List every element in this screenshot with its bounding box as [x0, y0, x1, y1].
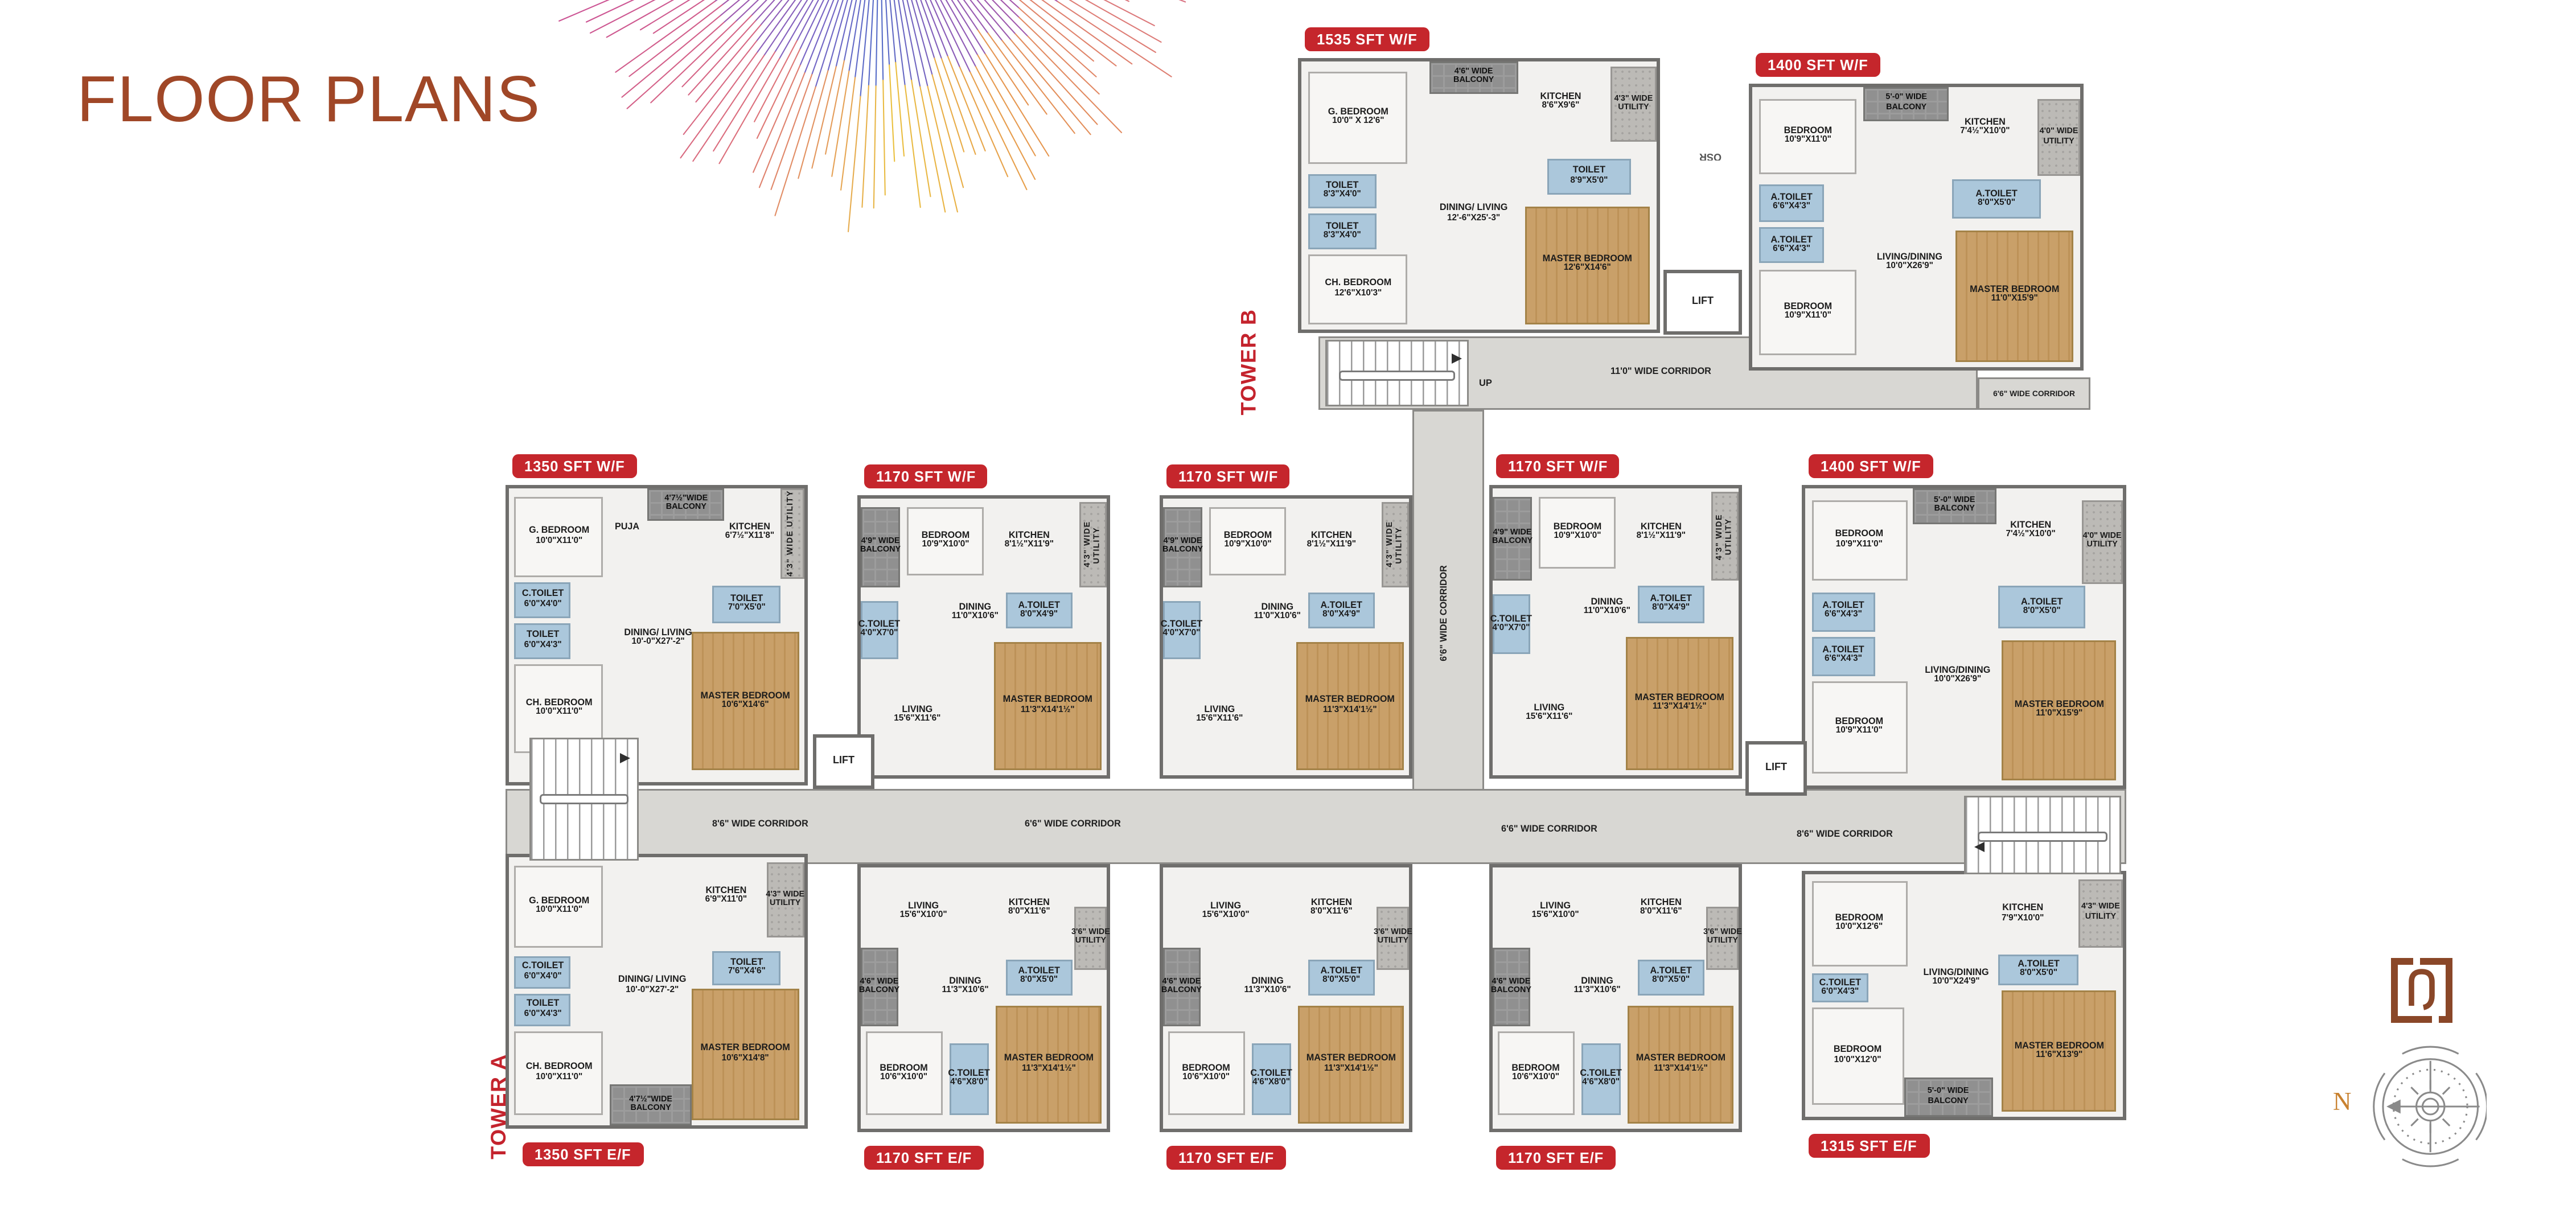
room-dimensions: 8'0"X4'9"	[1652, 605, 1690, 615]
lift-tower-b: LIFT	[1663, 270, 1742, 335]
unit-area-badge: 1400 SFT W/F	[1756, 53, 1880, 77]
room-dimensions: 8'0"X11'6"	[1008, 908, 1050, 919]
room-dimensions: 7'9"X10'0"	[2002, 915, 2044, 925]
room-living-dining: LIVING/DINING10'0"X24'9"	[1910, 945, 2002, 1013]
room-bedroom: BEDROOM10'9"X10'0"	[907, 507, 984, 577]
room-dining: DINING11'3"X10'6"	[1230, 959, 1306, 1014]
room-living: LIVING15'6"X10'0"	[873, 875, 974, 948]
room-dimensions: 4'6"X8'0"	[950, 1079, 988, 1089]
room-dimensions: 10'0" X 12'6"	[1332, 118, 1384, 128]
room-name: 4'3" WIDE UTILITY	[1084, 503, 1103, 586]
room-dimensions: 11'0"X15'9"	[1991, 296, 2038, 306]
room-4-6-wide: 4'6" WIDEBALCONY	[1429, 61, 1518, 93]
room-bedroom: BEDROOM10'9"X10'0"	[1210, 507, 1286, 577]
room-dimensions: UTILITY	[2086, 542, 2117, 552]
room-4-3-wide-utility: 4'3" WIDE UTILITY	[1382, 501, 1408, 587]
unit-1170-sft-ef-2: LIVING15'6"X10'0"KITCHEN8'0"X11'6"3'6" W…	[1160, 864, 1412, 1132]
room-dimensions: 4'0"X7'0"	[1162, 630, 1200, 640]
room-kitchen: KITCHEN8'0"X11'6"	[1625, 875, 1696, 941]
unit-1170-sft-wf-3: 4'9" WIDEBALCONYBEDROOM10'9"X10'0"KITCHE…	[1489, 485, 1742, 779]
tower-b-label: TOWER B	[1236, 309, 1260, 416]
room-dimensions: BALCONY	[666, 504, 706, 514]
room-a-toilet: A.TOILET8'0"X5'0"	[1999, 955, 2078, 986]
room-c-toilet: C.TOILET6'0"X4'0"	[515, 582, 571, 618]
room-living-dining: LIVING/DINING10'0"X26'9"	[1916, 634, 1999, 717]
room-4-7-wide: 4'7½"WIDEBALCONY	[648, 488, 725, 521]
unit-1350-sft-ef: G. BEDROOM10'0"X11'0"KITCHEN6'9"X11'0"4'…	[506, 854, 808, 1129]
room-kitchen: KITCHEN7'4½"X10'0"	[1990, 503, 2072, 560]
room-dimensions: 10'0"X24'9"	[1933, 979, 1980, 989]
room-dimensions: 7'4½"X10'0"	[1960, 128, 2010, 138]
room-name: 5'-0" WIDE	[1928, 1088, 1969, 1097]
room-dimensions: 10'9"X10'0"	[1554, 533, 1601, 544]
unit-area-badge: 1170 SFT E/F	[1496, 1146, 1616, 1170]
room-dimensions: 11'0"X10'6"	[952, 614, 999, 624]
room-living: LIVING15'6"X10'0"	[1176, 875, 1276, 948]
compass-north-label: N	[2333, 1089, 2352, 1118]
corridor-tower-a: 8'6" WIDE CORRIDOR 6'6" WIDE CORRIDOR 6'…	[506, 789, 2126, 864]
room-dimensions: UTILITY	[1378, 938, 1408, 948]
room-name: 5'-0" WIDE	[1934, 497, 1975, 507]
unit-area-badge: 1170 SFT W/F	[1166, 464, 1290, 488]
corridor-width-label: 6'6" WIDE CORRIDOR	[1025, 820, 1121, 830]
floor-plans-canvas: FLOOR PLANS TOWER B G. BEDROOM10'0" X 12…	[0, 0, 2576, 1205]
room-4-3-wide: 4'3" WIDEUTILITY	[2078, 879, 2123, 947]
room-dimensions: 8'0"X4'9"	[1322, 611, 1360, 621]
room-dimensions: 8'0"X5'0"	[1322, 977, 1360, 988]
room-a-toilet: A.TOILET6'6"X4'3"	[1811, 593, 1875, 631]
room-4-6-wide: 4'6" WIDEBALCONY	[1163, 948, 1200, 1027]
room-dimensions: 10'9"X10'0"	[922, 542, 969, 552]
unit-area-badge: 1315 SFT E/F	[1809, 1134, 1929, 1158]
room-dimensions: BALCONY	[1886, 104, 1926, 113]
room-dimensions: 12'6"X10'3"	[1334, 290, 1382, 300]
room-dimensions: 6'6"X4'3"	[1825, 612, 1862, 622]
room-master-bedroom: MASTER BEDROOM11'3"X14'1½"	[1628, 1006, 1734, 1124]
room-c-toilet: C.TOILET6'0"X4'0"	[515, 956, 571, 988]
room-bedroom: BEDROOM10'9"X11'0"	[1759, 269, 1857, 356]
room-master-bedroom: MASTER BEDROOM10'6"X14'6"	[692, 632, 799, 770]
room-kitchen: KITCHEN8'1½"X11'9"	[1296, 509, 1367, 573]
room-name: 4'7½"WIDE	[664, 495, 708, 505]
room-a-toilet: A.TOILET6'6"X4'3"	[1759, 227, 1824, 264]
room-dimensions: 11'6"X13'9"	[2036, 1051, 2082, 1062]
room-dimensions: 8'0"X5'0"	[2023, 607, 2061, 618]
room-dimensions: 8'3"X4'0"	[1324, 232, 1361, 242]
room-dimensions: 4'6"X8'0"	[1582, 1079, 1620, 1089]
room-4-3-wide-utility: 4'3" WIDE UTILITY	[780, 488, 804, 579]
lift-tower-a-east: LIFT	[1745, 741, 1807, 796]
room-name: 4'7½"WIDE	[629, 1096, 672, 1105]
corridor-width-label: 8'6" WIDE CORRIDOR	[1797, 830, 1893, 840]
room-dimensions: 11'0"X10'6"	[1254, 614, 1301, 624]
room-dimensions: 8'0"X5'0"	[1978, 199, 2015, 209]
room-dimensions: 6'7½"X11'8"	[725, 533, 774, 543]
room-dimensions: BALCONY	[1453, 77, 1494, 87]
room-dimensions: 6'6"X4'3"	[1773, 204, 1810, 214]
room-dimensions: BALCONY	[631, 1105, 671, 1115]
corridor-width-label: 6'6" WIDE CORRIDOR	[1979, 379, 2089, 408]
room-name: DINING/ LIVING	[618, 976, 687, 986]
room-name: PUJA	[615, 523, 639, 533]
room-dimensions: 8'0"X5'0"	[1020, 977, 1058, 988]
lift-tower-a-west: LIFT	[813, 734, 874, 789]
room-dimensions: 10'0"X12'6"	[1835, 924, 1883, 935]
room-name: 4'0" WIDE	[2040, 128, 2078, 138]
room-dimensions: 6'0"X4'0"	[524, 601, 562, 611]
stairs-up-label: UP	[1479, 379, 1492, 389]
room-4-6-wide: 4'6" WIDEBALCONY	[861, 948, 898, 1027]
unit-area-badge: 1170 SFT E/F	[864, 1146, 984, 1170]
room-4-0-wide: 4'0" WIDEUTILITY	[2037, 98, 2080, 177]
room-4-9-wide: 4'9" WIDEBALCONY	[1163, 507, 1202, 587]
room-bedroom: BEDROOM10'6"X10'0"	[1168, 1032, 1244, 1116]
lift-label: LIFT	[1765, 763, 1787, 774]
page-title: FLOOR PLANS	[77, 65, 541, 138]
room-living: LIVING15'6"X11'6"	[1505, 669, 1593, 758]
room-dimensions: 10'-0"X27'-2"	[631, 639, 684, 649]
room-dimensions: BALCONY	[1492, 538, 1533, 548]
room-dimensions: 10'9"X10'0"	[1225, 542, 1272, 552]
room-toilet: TOILET8'9"X5'0"	[1547, 158, 1632, 196]
unit-area-badge: 1350 SFT E/F	[523, 1142, 643, 1166]
room-name: CH. BEDROOM	[526, 1063, 593, 1074]
room-master-bedroom: MASTER BEDROOM11'0"X15'9"	[1955, 230, 2073, 361]
room-name: KITCHEN	[2002, 904, 2043, 915]
room-living-dining: LIVING/DINING10'0"X26'9"	[1867, 224, 1953, 303]
room-3-6-wide: 3'6" WIDEUTILITY	[1075, 907, 1107, 969]
room-dining: DINING11'3"X10'6"	[1559, 959, 1636, 1014]
room-a-toilet: A.TOILET8'0"X4'9"	[1006, 593, 1073, 628]
corridor-link: 6'6" WIDE CORRIDOR	[1412, 410, 1484, 792]
room-dimensions: UTILITY	[2043, 138, 2074, 147]
room-dimensions: 15'6"X11'6"	[894, 716, 940, 726]
room-dimensions: 7'4½"X10'0"	[2006, 532, 2056, 542]
room-c-toilet: C.TOILET4'0"X7'0"	[861, 601, 898, 659]
unit-area-badge: 1400 SFT W/F	[1809, 454, 1933, 478]
room-dimensions: 15'6"X11'6"	[1196, 716, 1243, 726]
room-bedroom: BEDROOM10'6"X10'0"	[1498, 1032, 1574, 1116]
room-dimensions: 10'9"X11'0"	[1785, 137, 1831, 147]
room-dimensions: 6'6"X4'3"	[1773, 245, 1810, 256]
room-master-bedroom: MASTER BEDROOM11'3"X14'1½"	[1625, 638, 1733, 770]
room-name: 4'3" WIDE	[766, 891, 804, 900]
room-dimensions: 10'6"X10'0"	[1512, 1074, 1559, 1084]
room-4-3-wide-utility: 4'3" WIDE UTILITY	[1079, 501, 1106, 587]
unit-1315-sft-ef: BEDROOM10'0"X12'6"KITCHEN7'9"X10'0"4'3" …	[1802, 871, 2126, 1120]
builder-logo-icon	[2388, 956, 2456, 1025]
room-a-toilet: A.TOILET8'0"X5'0"	[1952, 179, 2040, 219]
unit-1170-sft-wf-2: 4'9" WIDEBALCONYBEDROOM10'9"X10'0"KITCHE…	[1160, 495, 1412, 779]
room-a-toilet: A.TOILET8'0"X4'9"	[1308, 593, 1375, 628]
room-dimensions: 11'3"X14'1½"	[1324, 1065, 1378, 1075]
unit-1170-sft-wf-1: 4'9" WIDEBALCONYBEDROOM10'9"X10'0"KITCHE…	[857, 495, 1110, 779]
room-name: 3'6" WIDE	[1071, 928, 1110, 938]
room-name: C.TOILET	[522, 590, 564, 601]
room-dimensions: 10'6"X14'6"	[722, 702, 769, 712]
room-dimensions: 11'0"X10'6"	[1584, 608, 1630, 618]
room-bedroom: BEDROOM10'9"X10'0"	[1539, 497, 1616, 569]
room-dimensions: 4'6"X8'0"	[1252, 1079, 1290, 1089]
room-master-bedroom: MASTER BEDROOM11'0"X15'9"	[2002, 640, 2117, 779]
room-name: TOILET	[527, 631, 559, 641]
room-c-toilet: C.TOILET4'0"X7'0"	[1493, 594, 1530, 655]
floor-plans-page: FLOOR PLANS TOWER B G. BEDROOM10'0" X 12…	[0, 0, 2576, 1205]
staircase-tower-a-west	[529, 738, 639, 861]
room-dimensions: 8'0"X11'6"	[1310, 908, 1353, 919]
room-toilet: TOILET8'3"X4'0"	[1308, 214, 1376, 249]
unit-1400-sft-wf-tower-a: BEDROOM10'9"X11'0"5'-0" WIDEBALCONYKITCH…	[1802, 485, 2126, 789]
room-kitchen: KITCHEN7'4½"X10'0"	[1942, 101, 2028, 154]
room-dimensions: BALCONY	[1162, 547, 1203, 557]
room-g-bedroom: G. BEDROOM10'0"X11'0"	[515, 497, 603, 576]
stairs-direction-arrow	[1451, 354, 1461, 364]
room-dimensions: 8'0"X5'0"	[1652, 977, 1690, 988]
room-dimensions: 10'0"X26'9"	[1934, 676, 1981, 686]
room-kitchen: KITCHEN8'1½"X11'9"	[1625, 500, 1696, 566]
room-dimensions: 10'6"X10'0"	[880, 1074, 927, 1084]
stairs-direction-arrow	[1974, 841, 1984, 852]
room-dimensions: UTILITY	[1618, 104, 1649, 114]
unit-1170-sft-ef-1: LIVING15'6"X10'0"KITCHEN8'0"X11'6"3'6" W…	[857, 864, 1110, 1132]
room-bedroom: BEDROOM10'0"X12'6"	[1811, 882, 1907, 967]
room-a-toilet: A.TOILET8'0"X4'9"	[1638, 586, 1704, 623]
room-4-9-wide: 4'9" WIDEBALCONY	[861, 507, 900, 587]
room-name: 4'3" WIDE UTILITY	[788, 491, 798, 577]
room-dimensions: 6'6"X4'3"	[1825, 656, 1862, 667]
room-dimensions: UTILITY	[770, 900, 800, 910]
room-dimensions: 8'0"X11'6"	[1640, 908, 1682, 919]
room-a-toilet: A.TOILET8'0"X5'0"	[1999, 586, 2085, 628]
room-4-9-wide: 4'9" WIDEBALCONY	[1493, 497, 1532, 580]
room-a-toilet: A.TOILET8'0"X5'0"	[1638, 959, 1704, 996]
stairs-direction-arrow	[621, 754, 631, 764]
room-3-6-wide: 3'6" WIDEUTILITY	[1707, 907, 1739, 969]
staircase-tower-b	[1325, 340, 1469, 406]
room-g-bedroom: G. BEDROOM10'0" X 12'6"	[1308, 72, 1408, 163]
room-name: 4'6" WIDE	[1162, 978, 1201, 988]
room-dining: DINING11'0"X10'6"	[937, 585, 1013, 643]
tower-a-label: TOWER A	[487, 1054, 511, 1159]
room-4-7-wide: 4'7½"WIDEBALCONY	[609, 1085, 692, 1125]
room-kitchen: KITCHEN6'7½"X11'8"	[718, 500, 780, 565]
room-3-6-wide: 3'6" WIDEUTILITY	[1377, 907, 1409, 969]
room-dimensions: BALCONY	[1161, 988, 1202, 997]
unit-1400-sft-wf-tower-b: BEDROOM10'9"X11'0"5'-0" WIDEBALCONYKITCH…	[1749, 84, 2084, 371]
lift-label: LIFT	[833, 756, 854, 767]
room-dimensions: 11'3"X14'1½"	[1653, 704, 1707, 714]
unit-area-badge: 1350 SFT W/F	[512, 454, 637, 478]
room-4-0-wide: 4'0" WIDEUTILITY	[2081, 500, 2123, 583]
room-dimensions: 10'0"X11'0"	[536, 907, 582, 918]
room-bedroom: BEDROOM10'0"X12'0"	[1811, 1007, 1904, 1104]
room-name: 4'9" WIDE	[1164, 537, 1202, 547]
room-name: 5'-0" WIDE	[1885, 94, 1927, 104]
room-master-bedroom: MASTER BEDROOM11'6"X13'9"	[2002, 990, 2117, 1112]
room-bedroom: BEDROOM10'9"X11'0"	[1759, 98, 1857, 174]
room-dimensions: 8'0"X4'9"	[1020, 611, 1058, 621]
unit-area-badge: 1535 SFT W/F	[1305, 27, 1429, 51]
room-ch-bedroom: CH. BEDROOM10'0"X11'0"	[515, 1031, 603, 1114]
room-living: LIVING15'6"X10'0"	[1505, 875, 1606, 948]
room-kitchen: KITCHEN8'0"X11'6"	[993, 875, 1065, 941]
room-master-bedroom: MASTER BEDROOM11'3"X14'1½"	[993, 643, 1102, 770]
room-dimensions: 11'3"X10'6"	[942, 986, 989, 997]
room-dimensions: 7'0"X5'0"	[728, 604, 766, 615]
room-dimensions: UTILITY	[1075, 938, 1106, 948]
room-toilet: TOILET6'0"X4'3"	[515, 623, 571, 659]
room-living: LIVING15'6"X11'6"	[1176, 673, 1264, 759]
room-dimensions: 6'0"X4'3"	[524, 1010, 562, 1021]
room-dimensions: 11'3"X14'1½"	[1021, 706, 1075, 717]
room-dimensions: 8'1½"X11'9"	[1637, 533, 1686, 544]
room-master-bedroom: MASTER BEDROOM10'6"X14'8"	[692, 989, 799, 1120]
room-dimensions: 10'6"X10'0"	[1182, 1074, 1230, 1084]
compass-icon	[2364, 1045, 2487, 1168]
room-dimensions: 4'0"X7'0"	[1492, 625, 1530, 635]
room-bedroom: BEDROOM10'6"X10'0"	[866, 1032, 942, 1116]
room-c-toilet: C.TOILET4'6"X8'0"	[1581, 1043, 1620, 1116]
unit-1535-sft-wf: G. BEDROOM10'0" X 12'6"4'6" WIDEBALCONYK…	[1298, 58, 1660, 333]
room-4-3-wide: 4'3" WIDEUTILITY	[766, 862, 804, 937]
room-4-3-wide-utility: 4'3" WIDE UTILITY	[1711, 491, 1738, 580]
room-dimensions: 8'9"X5'0"	[1570, 177, 1608, 187]
room-dimensions: 8'6"X9'6"	[1542, 102, 1579, 112]
room-dimensions: 10'0"X11'0"	[536, 1074, 582, 1084]
room-dimensions: 10'6"X14'8"	[722, 1055, 769, 1065]
room-dimensions: 6'0"X4'3"	[524, 641, 562, 652]
room-5-0-wide: 5'-0" WIDEBALCONY	[1864, 87, 1949, 121]
room-dimensions: BALCONY	[859, 988, 899, 997]
room-kitchen: KITCHEN6'9"X11'0"	[689, 868, 763, 924]
corridor-width-label: 11'0" WIDE CORRIDOR	[1610, 367, 1711, 377]
staircase-tower-a-east	[1964, 796, 2121, 874]
room-dimensions: 10'0"X12'0"	[1834, 1056, 1881, 1067]
room-dimensions: 15'6"X10'0"	[1202, 912, 1250, 923]
room-name: 4'9" WIDE	[1493, 529, 1532, 539]
room-5-0-wide: 5'-0" WIDEBALCONY	[1904, 1078, 1992, 1117]
room-name: 4'6" WIDE	[1492, 978, 1531, 988]
room-name: 4'3" WIDE	[1614, 95, 1653, 105]
room-dimensions: 10'9"X11'0"	[1836, 728, 1883, 738]
room-dimensions: 8'1½"X11'9"	[1005, 542, 1054, 552]
room-living: LIVING15'6"X11'6"	[873, 673, 962, 759]
room-name: 4'0" WIDE	[2083, 532, 2122, 542]
room-dimensions: UTILITY	[1707, 938, 1738, 948]
room-dimensions: 6'0"X4'0"	[524, 973, 562, 983]
room-ch-bedroom: CH. BEDROOM12'6"X10'3"	[1308, 254, 1408, 324]
room-dimensions: BALCONY	[1928, 1097, 1968, 1107]
room-master-bedroom: MASTER BEDROOM12'6"X14'6"	[1525, 206, 1649, 324]
room-dimensions: 15'6"X10'0"	[1532, 912, 1579, 923]
osr-label: OSR	[1699, 150, 1722, 161]
room-dimensions: 4'0"X7'0"	[860, 630, 898, 640]
room-dining: DINING11'0"X10'6"	[1239, 585, 1316, 643]
room-dimensions: 11'3"X10'6"	[1244, 986, 1291, 997]
room-dimensions: 11'3"X14'1½"	[1654, 1065, 1708, 1075]
room-a-toilet: A.TOILET6'6"X4'3"	[1759, 185, 1824, 221]
room-name: 4'6" WIDE	[860, 978, 899, 988]
room-4-3-wide: 4'3" WIDEUTILITY	[1610, 67, 1657, 142]
corridor-width-label: 8'6" WIDE CORRIDOR	[712, 820, 808, 830]
unit-area-badge: 1170 SFT W/F	[864, 464, 988, 488]
room-name: 4'6" WIDE	[1455, 68, 1493, 78]
room-dimensions: 11'3"X10'6"	[1574, 986, 1621, 997]
room-toilet: TOILET6'0"X4'3"	[515, 994, 571, 1026]
room-a-toilet: A.TOILET6'6"X4'3"	[1811, 637, 1875, 676]
unit-area-badge: 1170 SFT E/F	[1166, 1146, 1286, 1170]
room-toilet: TOILET7'6"X4'6"	[713, 951, 780, 986]
room-dimensions: 6'9"X11'0"	[705, 896, 747, 907]
room-name: 4'9" WIDE	[861, 537, 900, 547]
room-dimensions: 8'1½"X11'9"	[1307, 542, 1356, 552]
room-bedroom: BEDROOM10'9"X11'0"	[1811, 500, 1907, 581]
room-dimensions: 8'0"X5'0"	[2020, 970, 2057, 981]
room-dimensions: 10'9"X11'0"	[1836, 541, 1883, 551]
decorative-sunburst	[538, 0, 1221, 260]
room-c-toilet: C.TOILET4'0"X7'0"	[1163, 601, 1200, 659]
room-5-0-wide: 5'-0" WIDEBALCONY	[1913, 488, 1996, 524]
room-bedroom: BEDROOM10'9"X11'0"	[1811, 681, 1907, 774]
room-dimensions: 11'3"X14'1½"	[1323, 706, 1377, 717]
lift-label: LIFT	[1692, 297, 1714, 307]
room-dimensions: 15'6"X10'0"	[900, 912, 947, 923]
room-name: MASTER BEDROOM	[701, 1044, 790, 1055]
room-name: 3'6" WIDE	[1703, 928, 1742, 938]
room-a-toilet: A.TOILET8'0"X5'0"	[1006, 959, 1073, 996]
unit-1170-sft-ef-3: LIVING15'6"X10'0"KITCHEN8'0"X11'6"3'6" W…	[1489, 864, 1742, 1132]
room-dimensions: 11'0"X15'9"	[2036, 710, 2082, 720]
room-c-toilet: C.TOILET4'6"X8'0"	[1251, 1043, 1291, 1116]
corridor-width-label: 6'6" WIDE CORRIDOR	[1440, 565, 1450, 661]
room-kitchen: KITCHEN8'1½"X11'9"	[993, 509, 1065, 573]
room-kitchen: KITCHEN8'0"X11'6"	[1296, 875, 1367, 941]
room-4-6-wide: 4'6" WIDEBALCONY	[1493, 948, 1530, 1027]
room-toilet: TOILET8'3"X4'0"	[1308, 174, 1376, 209]
room-dimensions: BALCONY	[1491, 988, 1531, 997]
room-dining: DINING11'0"X10'6"	[1569, 577, 1645, 638]
room-master-bedroom: MASTER BEDROOM11'3"X14'1½"	[1299, 1006, 1404, 1124]
room-c-toilet: C.TOILET4'6"X8'0"	[949, 1043, 988, 1116]
room-dining-living: DINING/ LIVING12'-6"X25'-3"	[1419, 174, 1529, 254]
room-dimensions: 12'-6"X25'-3"	[1447, 215, 1500, 225]
room-master-bedroom: MASTER BEDROOM11'3"X14'1½"	[1296, 643, 1404, 770]
room-dimensions: 10'-0"X27'-2"	[626, 986, 679, 997]
corridor-width-label: 6'6" WIDE CORRIDOR	[1501, 825, 1597, 835]
room-name: 3'6" WIDE	[1374, 928, 1412, 938]
room-dimensions: 8'3"X4'0"	[1324, 192, 1361, 202]
room-dimensions: BALCONY	[1934, 506, 1975, 516]
room-dimensions: 6'0"X4'3"	[1821, 989, 1859, 999]
room-name: 4'3" WIDE	[2081, 904, 2120, 914]
room-dining: DINING11'3"X10'6"	[927, 959, 1004, 1014]
room-dimensions: 10'9"X11'0"	[1785, 313, 1831, 323]
room-dimensions: BALCONY	[860, 547, 901, 557]
room-name: G. BEDROOM	[529, 527, 589, 537]
room-dimensions: 7'6"X4'6"	[728, 969, 766, 979]
room-name: 4'3" WIDE UTILITY	[1716, 493, 1735, 578]
room-kitchen: KITCHEN8'6"X9'6"	[1518, 75, 1604, 129]
room-dimensions: 10'0"X26'9"	[1886, 264, 1933, 274]
room-c-toilet: C.TOILET6'0"X4'3"	[1811, 974, 1868, 1003]
room-puja: PUJA	[609, 515, 644, 541]
room-dimensions: 11'3"X14'1½"	[1022, 1065, 1076, 1075]
room-dimensions: UTILITY	[2085, 913, 2116, 923]
room-a-toilet: A.TOILET8'0"X5'0"	[1308, 959, 1375, 996]
room-name: 4'3" WIDE UTILITY	[1386, 503, 1405, 586]
corridor-tower-b-east: 6'6" WIDE CORRIDOR	[1978, 377, 2090, 410]
unit-area-badge: 1170 SFT W/F	[1496, 454, 1620, 478]
